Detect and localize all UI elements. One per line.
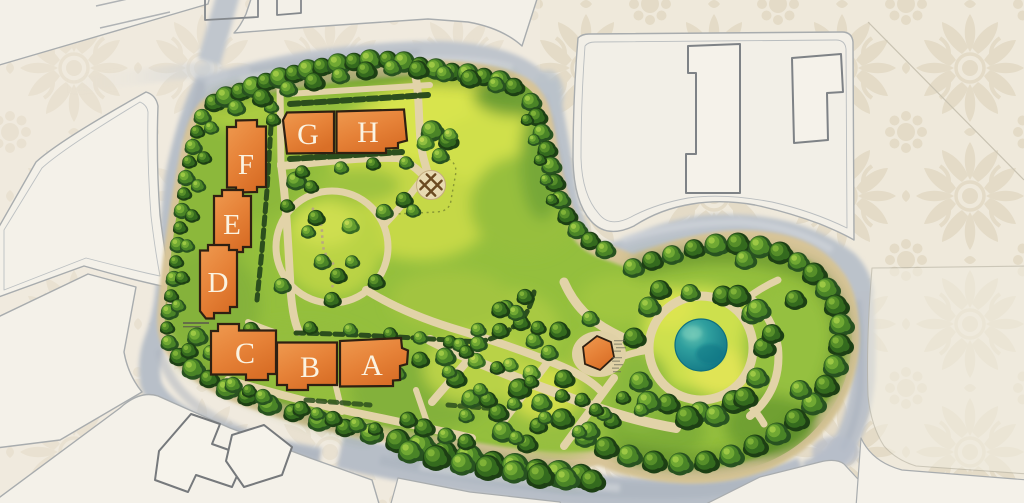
svg-text:G: G [297, 118, 319, 151]
svg-text:D: D [208, 267, 229, 299]
svg-text:B: B [300, 351, 320, 384]
svg-text:A: A [361, 349, 383, 382]
svg-text:E: E [223, 209, 241, 241]
svg-text:C: C [235, 337, 255, 370]
svg-text:H: H [357, 116, 379, 149]
svg-text:F: F [238, 149, 254, 181]
